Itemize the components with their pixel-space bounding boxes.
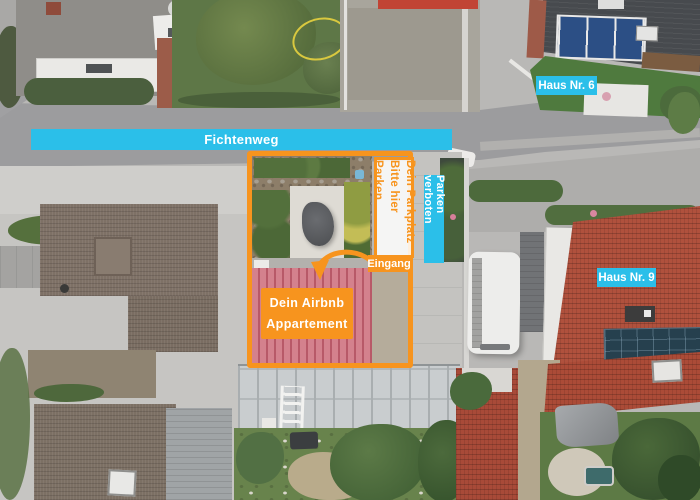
solar-panels: [555, 14, 646, 61]
stairs-structure: [520, 232, 544, 332]
camper-windshield: [480, 344, 510, 350]
skylight: [636, 26, 659, 42]
street-name-text: Fichtenweg: [204, 132, 279, 147]
camper-roof-rack: [472, 258, 482, 348]
skylight: [86, 64, 112, 73]
haus6-roof-edge: [526, 0, 546, 58]
metal-roof-gray: [166, 408, 232, 500]
parking-note: Dein Parkplatz Bitte hier Parken: [374, 157, 414, 258]
tree: [330, 424, 426, 500]
street-name-banner: Fichtenweg: [31, 129, 452, 150]
apartment-label: Dein Airbnb Appartement: [261, 288, 353, 339]
fence-brown: [642, 52, 700, 72]
paver-area: [348, 8, 462, 100]
ladder: [279, 386, 305, 433]
entrance-text: Eingang: [367, 258, 410, 270]
house-roof-brown-wing: [128, 296, 218, 352]
tree: [658, 455, 700, 500]
skylight: [107, 469, 136, 496]
haus9-text: Haus Nr. 9: [598, 272, 654, 284]
roof-vent-cap: [644, 310, 651, 317]
haus6-label: Haus Nr. 6: [536, 76, 597, 95]
compost-bin: [290, 432, 319, 450]
flower-bed: [468, 180, 563, 202]
garden-figure: [602, 92, 611, 101]
hedge-roadside: [24, 78, 154, 105]
parking-note-line1: Dein Parkplatz: [402, 160, 418, 255]
skylight: [598, 0, 624, 9]
aerial-photo: Fichtenweg Haus Nr. 6 Haus Nr. 9 Dein Pa…: [0, 0, 700, 500]
brick-pillar: [157, 38, 173, 108]
chimney: [46, 2, 61, 15]
flowers-pink: [450, 214, 456, 220]
house-roof-brown-lower: [34, 404, 176, 500]
chimney-pipe: [60, 284, 69, 293]
white-crate: [262, 418, 276, 428]
wall-white: [462, 0, 468, 112]
apartment-line1: Dein Airbnb: [270, 293, 345, 314]
apartment-line2: Appartement: [266, 314, 348, 335]
haus6-text: Haus Nr. 6: [538, 80, 594, 92]
no-parking-note: Parken verboten: [424, 175, 444, 263]
parking-note-text: Dein Parkplatz Bitte hier Parken: [370, 160, 418, 255]
tarp-tent: [555, 402, 620, 448]
skylight: [651, 359, 682, 383]
red-awning: [378, 0, 478, 9]
entrance-label: Eingang: [368, 255, 410, 272]
no-parking-text: Parken verboten: [422, 175, 446, 263]
wall-white: [344, 0, 347, 110]
parking-note-line2: Bitte hier Parken: [370, 160, 402, 255]
haus9-label: Haus Nr. 9: [597, 268, 656, 287]
mini-pool: [584, 466, 614, 486]
flowers-pink: [590, 210, 597, 217]
roof-dormer: [94, 237, 132, 276]
